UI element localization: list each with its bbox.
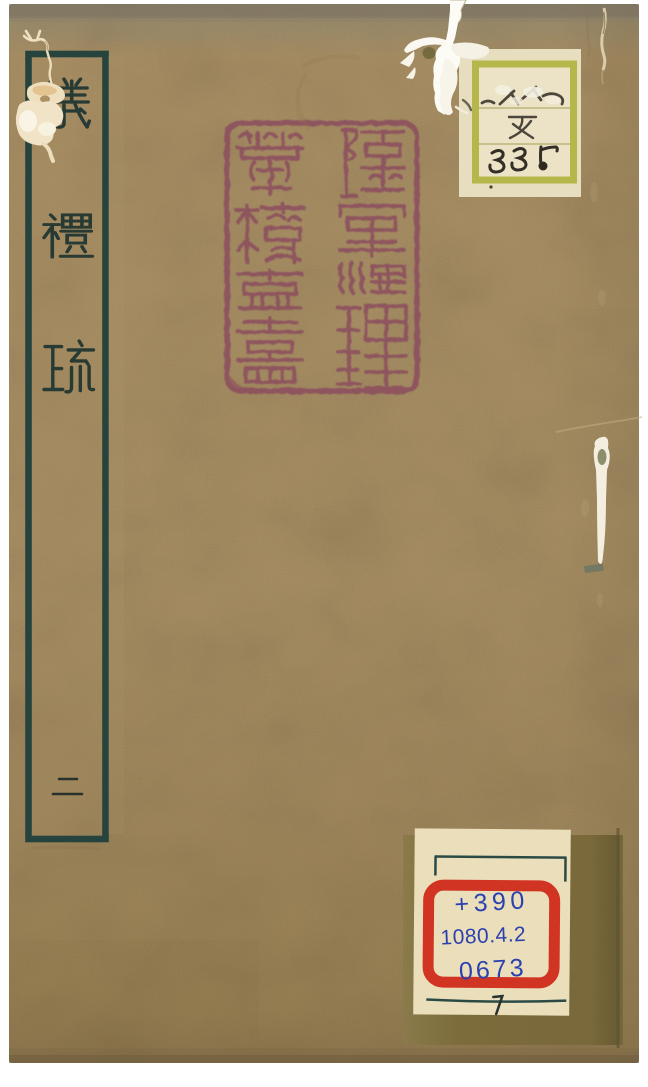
svg-text:0673: 0673	[458, 954, 527, 986]
svg-text:1080.4.2: 1080.4.2	[440, 923, 527, 950]
svg-text:+390: +390	[454, 886, 530, 918]
